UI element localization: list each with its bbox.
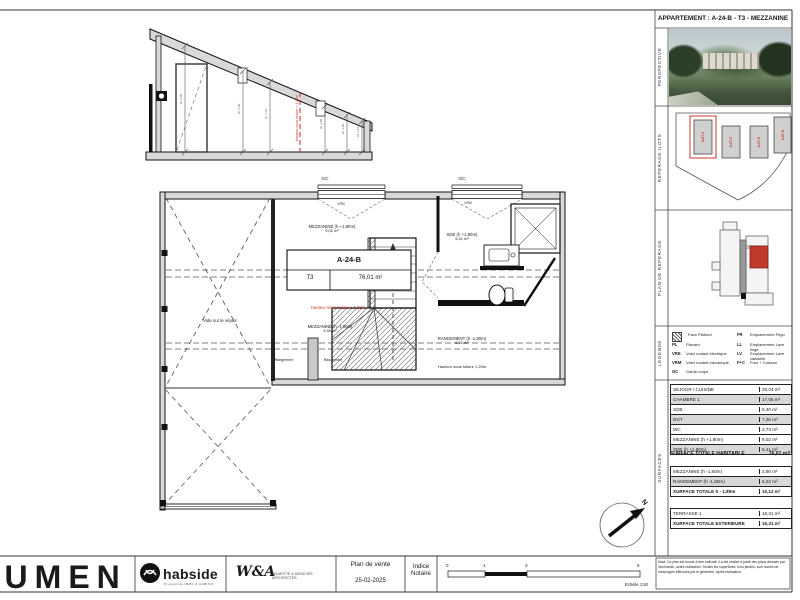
section-red-height-note: Hauteur sous toiture + 1,20m: [295, 88, 299, 148]
sheet-title: APPARTEMENT : A-24-B - T3 - MEZZANINE: [656, 15, 790, 23]
legend-fr: FREmplacement Frigo: [737, 332, 791, 337]
table-row: WC2,73 m²: [671, 424, 791, 434]
architect-name: WILMOTTE & ASSOCIÉS ARCHITECTES: [272, 572, 334, 580]
table-total-row: SURFACE TOTALE EXTERIEURE16,31 m²: [671, 518, 791, 528]
total-habitable: SURFACE TOTALE HABITABLE76,01 m2: [670, 451, 790, 457]
nota-text: Nota: Ce plan est donné à titre indicati…: [658, 560, 787, 574]
scale-tick-3: 3: [525, 563, 528, 568]
unit-type: T3: [291, 275, 329, 282]
legend-gc: GCGarde-corps: [672, 369, 734, 374]
lumen-brand-cell: LUMEN: [0, 556, 135, 592]
surface-table-exterieure: TERRASSE 116,31 m² SURFACE TOTALE EXTERI…: [670, 508, 792, 529]
architect-monogram: W&A: [236, 564, 275, 580]
indice-notaire-label: Indice Notaire: [405, 563, 437, 578]
surface-table-habitable: SEJOUR / CUISINE29,04 m² CHAMBRE 117,05 …: [670, 384, 792, 455]
table-total-row: SURFACE TOTALE h - 1.80m10,12 m²: [671, 486, 791, 496]
sde-fixtures: [422, 196, 560, 306]
doc-title: Plan de vente: [336, 561, 405, 569]
habside-tagline: Programme IMMO & HABITAT: [164, 582, 214, 586]
panel-label-surfaces: SURFACES: [657, 429, 667, 507]
section-dim-label: Ht. 1,90: [237, 89, 241, 129]
height-note-black: Hauteur sous toiture 1,20m: [420, 365, 504, 370]
habside-logo: [140, 563, 160, 583]
table-row: DGT7,36 m²: [671, 414, 791, 424]
gc-annotation: GC: [315, 177, 335, 183]
vrm-annotation: VRM: [329, 202, 353, 206]
scale-tick-0: 0: [446, 563, 449, 568]
lumen-logo: LUMEN: [0, 559, 127, 592]
room-label-mezzanine-low: MEZZANINE (h -1,80m) 3,90 m²: [290, 324, 370, 334]
room-label-sde: SDE (h +1,80m) 5,41 m²: [424, 232, 500, 242]
table-row: CHAMBRE 117,05 m²: [671, 394, 791, 404]
ilot-d-label: ILOT D: [757, 127, 761, 157]
table-row: RANGEMENT (h -1,80m)6,22 m²: [671, 476, 791, 486]
unit-area: 76,01 m²: [332, 275, 409, 282]
legend-faux-plafond: Faux Plafond: [672, 332, 734, 342]
gc-annotation: GC: [452, 177, 472, 183]
panel-label-reperage: PLAN DE REPERAGE: [657, 229, 667, 307]
table-row: MEZZANINE (h -1,80m)3,90 m²: [671, 467, 791, 476]
scale-tick-5: 5: [637, 563, 640, 568]
habside-name: habside: [163, 566, 218, 582]
unit-code: A-24-B: [289, 255, 409, 264]
scale-label: Echelle 1:50: [600, 582, 648, 587]
section-dim-label: Ht. 1,70: [264, 94, 268, 134]
height-note-red: Hauteur sous toiture + 1,20m: [286, 305, 390, 310]
legend-vrm: VRMVolet roulant mécanique: [672, 360, 734, 365]
section-dim-label: Ht. 1,10: [356, 112, 360, 152]
legend-fc: F+CFour + Cuisson: [737, 360, 791, 365]
hatch-swatch-icon: [672, 332, 682, 342]
ilot-b-label: ILOT B: [781, 120, 785, 150]
room-label-rangement: RANGEMENT (h -1,80m) 6,22 m²: [422, 336, 502, 346]
surface-table-sous-hauteur: MEZZANINE (h -1,80m)3,90 m² RANGEMENT (h…: [670, 466, 792, 497]
legend-vre: VREVolet roulant électrique: [672, 351, 734, 356]
scale-bar: [448, 571, 640, 577]
drawing-sheet: APPARTEMENT : A-24-B - T3 - MEZZANINE PE…: [0, 0, 800, 600]
ilot-a-label: ILOT A: [701, 122, 705, 152]
section-dim-label: Ht. 1,20: [341, 109, 345, 149]
section-dim-label: Ht. 1,50: [319, 104, 323, 144]
legend-pl: PLPlacard: [672, 342, 734, 347]
table-row: SEJOUR / CUISINE29,04 m²: [671, 385, 791, 394]
panel-label-legende: LEGENDE: [657, 314, 667, 392]
ilots-map: [676, 113, 791, 200]
void-label: Vide sur le séjour: [180, 318, 260, 323]
doc-date: 25-02-2025: [336, 578, 405, 585]
scale-tick-1: 1: [483, 563, 486, 568]
rangement-small-label: Rangement: [262, 358, 306, 362]
panel-label-ilots: REPERAGE ILOTS: [657, 119, 667, 197]
table-row: TERRASSE 116,31 m²: [671, 509, 791, 518]
room-label-mezzanine-high: MEZZANINE (h +1,80m) 9,02 m²: [292, 224, 372, 234]
table-row: SDB5,40 m²: [671, 404, 791, 414]
section-dim-label: Ht. 2,60: [179, 79, 183, 119]
table-row: MEZZANINE (h +1,80m)9,02 m²: [671, 434, 791, 444]
ilot-c-label: ILOT C: [729, 127, 733, 157]
reperage-map: [712, 222, 773, 305]
panel-label-perspective: PERSPECTIVE: [657, 28, 667, 106]
vrm-annotation: VRM: [456, 201, 480, 205]
perspective-image: [669, 29, 791, 105]
rangement-small-label: Rangement: [311, 358, 355, 362]
north-arrow: [600, 503, 645, 547]
